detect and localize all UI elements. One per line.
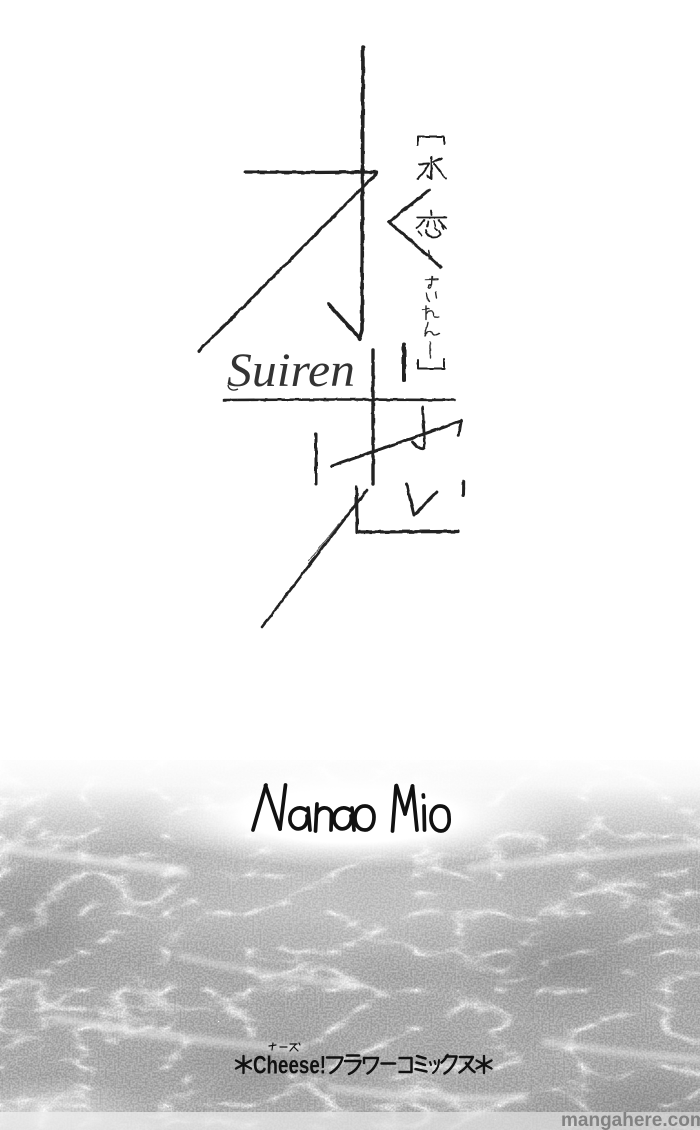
svg-text:Cheese!: Cheese! <box>253 1052 326 1080</box>
